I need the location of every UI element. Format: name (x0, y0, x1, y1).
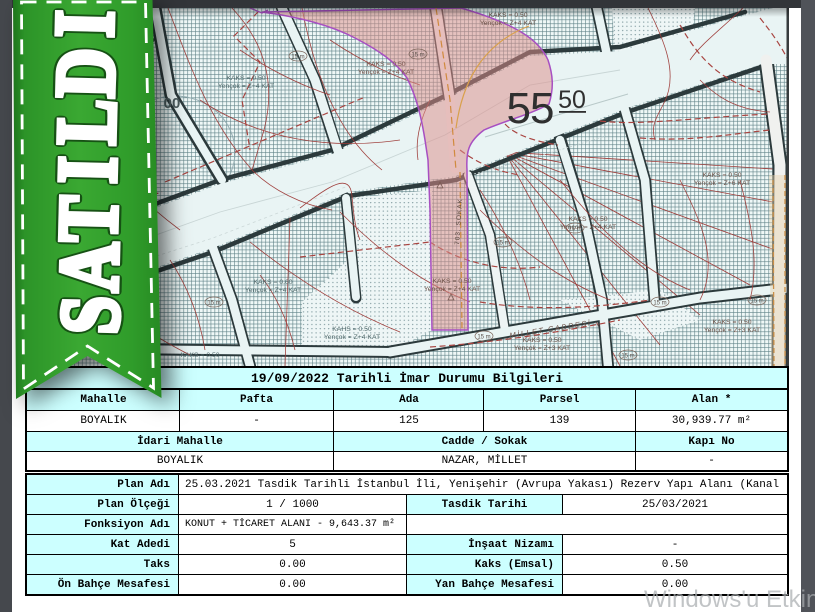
svg-text:KAKS = 0.50: KAKS = 0.50 (432, 278, 471, 285)
svg-text:15 m: 15 m (477, 334, 490, 340)
svg-text:A: A (42, 241, 137, 292)
svg-text:KAKS = 0.50: KAKS = 0.50 (522, 337, 561, 344)
svg-text:S: S (43, 295, 137, 335)
svg-text:L: L (39, 98, 133, 146)
svg-text:Yençok = Z+4 KAT: Yençok = Z+4 KAT (324, 334, 380, 341)
svg-text:50: 50 (558, 86, 586, 114)
svg-text:Yençok = Z+4 KAT: Yençok = Z+4 KAT (245, 287, 301, 294)
svg-text:Yençok = Z+4 KAT: Yençok = Z+4 KAT (358, 69, 414, 76)
svg-text:Yençok = Z+3 KAT: Yençok = Z+3 KAT (514, 345, 570, 352)
svg-text:Yençok = Z+3 KAT: Yençok = Z+3 KAT (704, 327, 760, 334)
svg-text:KAKS = 0.60: KAKS = 0.60 (253, 279, 292, 286)
svg-text:15 m: 15 m (496, 240, 509, 246)
svg-text:Yençok = Z+4 KAT: Yençok = Z+4 KAT (424, 286, 480, 293)
svg-text:KAKS = 0.50: KAKS = 0.50 (568, 216, 607, 223)
svg-text:15 m: 15 m (621, 353, 634, 359)
svg-text:Yençok = Z+6 KAT: Yençok = Z+6 KAT (694, 180, 750, 187)
svg-text:KAKS = 0.50: KAKS = 0.50 (702, 172, 741, 179)
svg-text:D: D (38, 47, 133, 98)
svg-text:15 m: 15 m (291, 54, 304, 60)
svg-text:I: I (38, 10, 132, 39)
svg-text:15 m: 15 m (653, 300, 666, 306)
svg-text:15 m: 15 m (411, 52, 424, 58)
svg-text:Yençok = Z+4 KAT: Yençok = Z+4 KAT (480, 20, 536, 27)
svg-text:15 m: 15 m (568, 226, 581, 232)
svg-text:I: I (40, 156, 134, 185)
svg-text:KAHS = 0.50: KAHS = 0.50 (332, 326, 372, 333)
svg-text:T: T (41, 195, 135, 243)
svg-text:KAKS = 0.50: KAKS = 0.50 (366, 61, 405, 68)
svg-text:55: 55 (507, 84, 554, 133)
svg-text:15 m: 15 m (750, 298, 763, 304)
svg-text:KAKS = 0.50: KAKS = 0.50 (712, 319, 751, 326)
